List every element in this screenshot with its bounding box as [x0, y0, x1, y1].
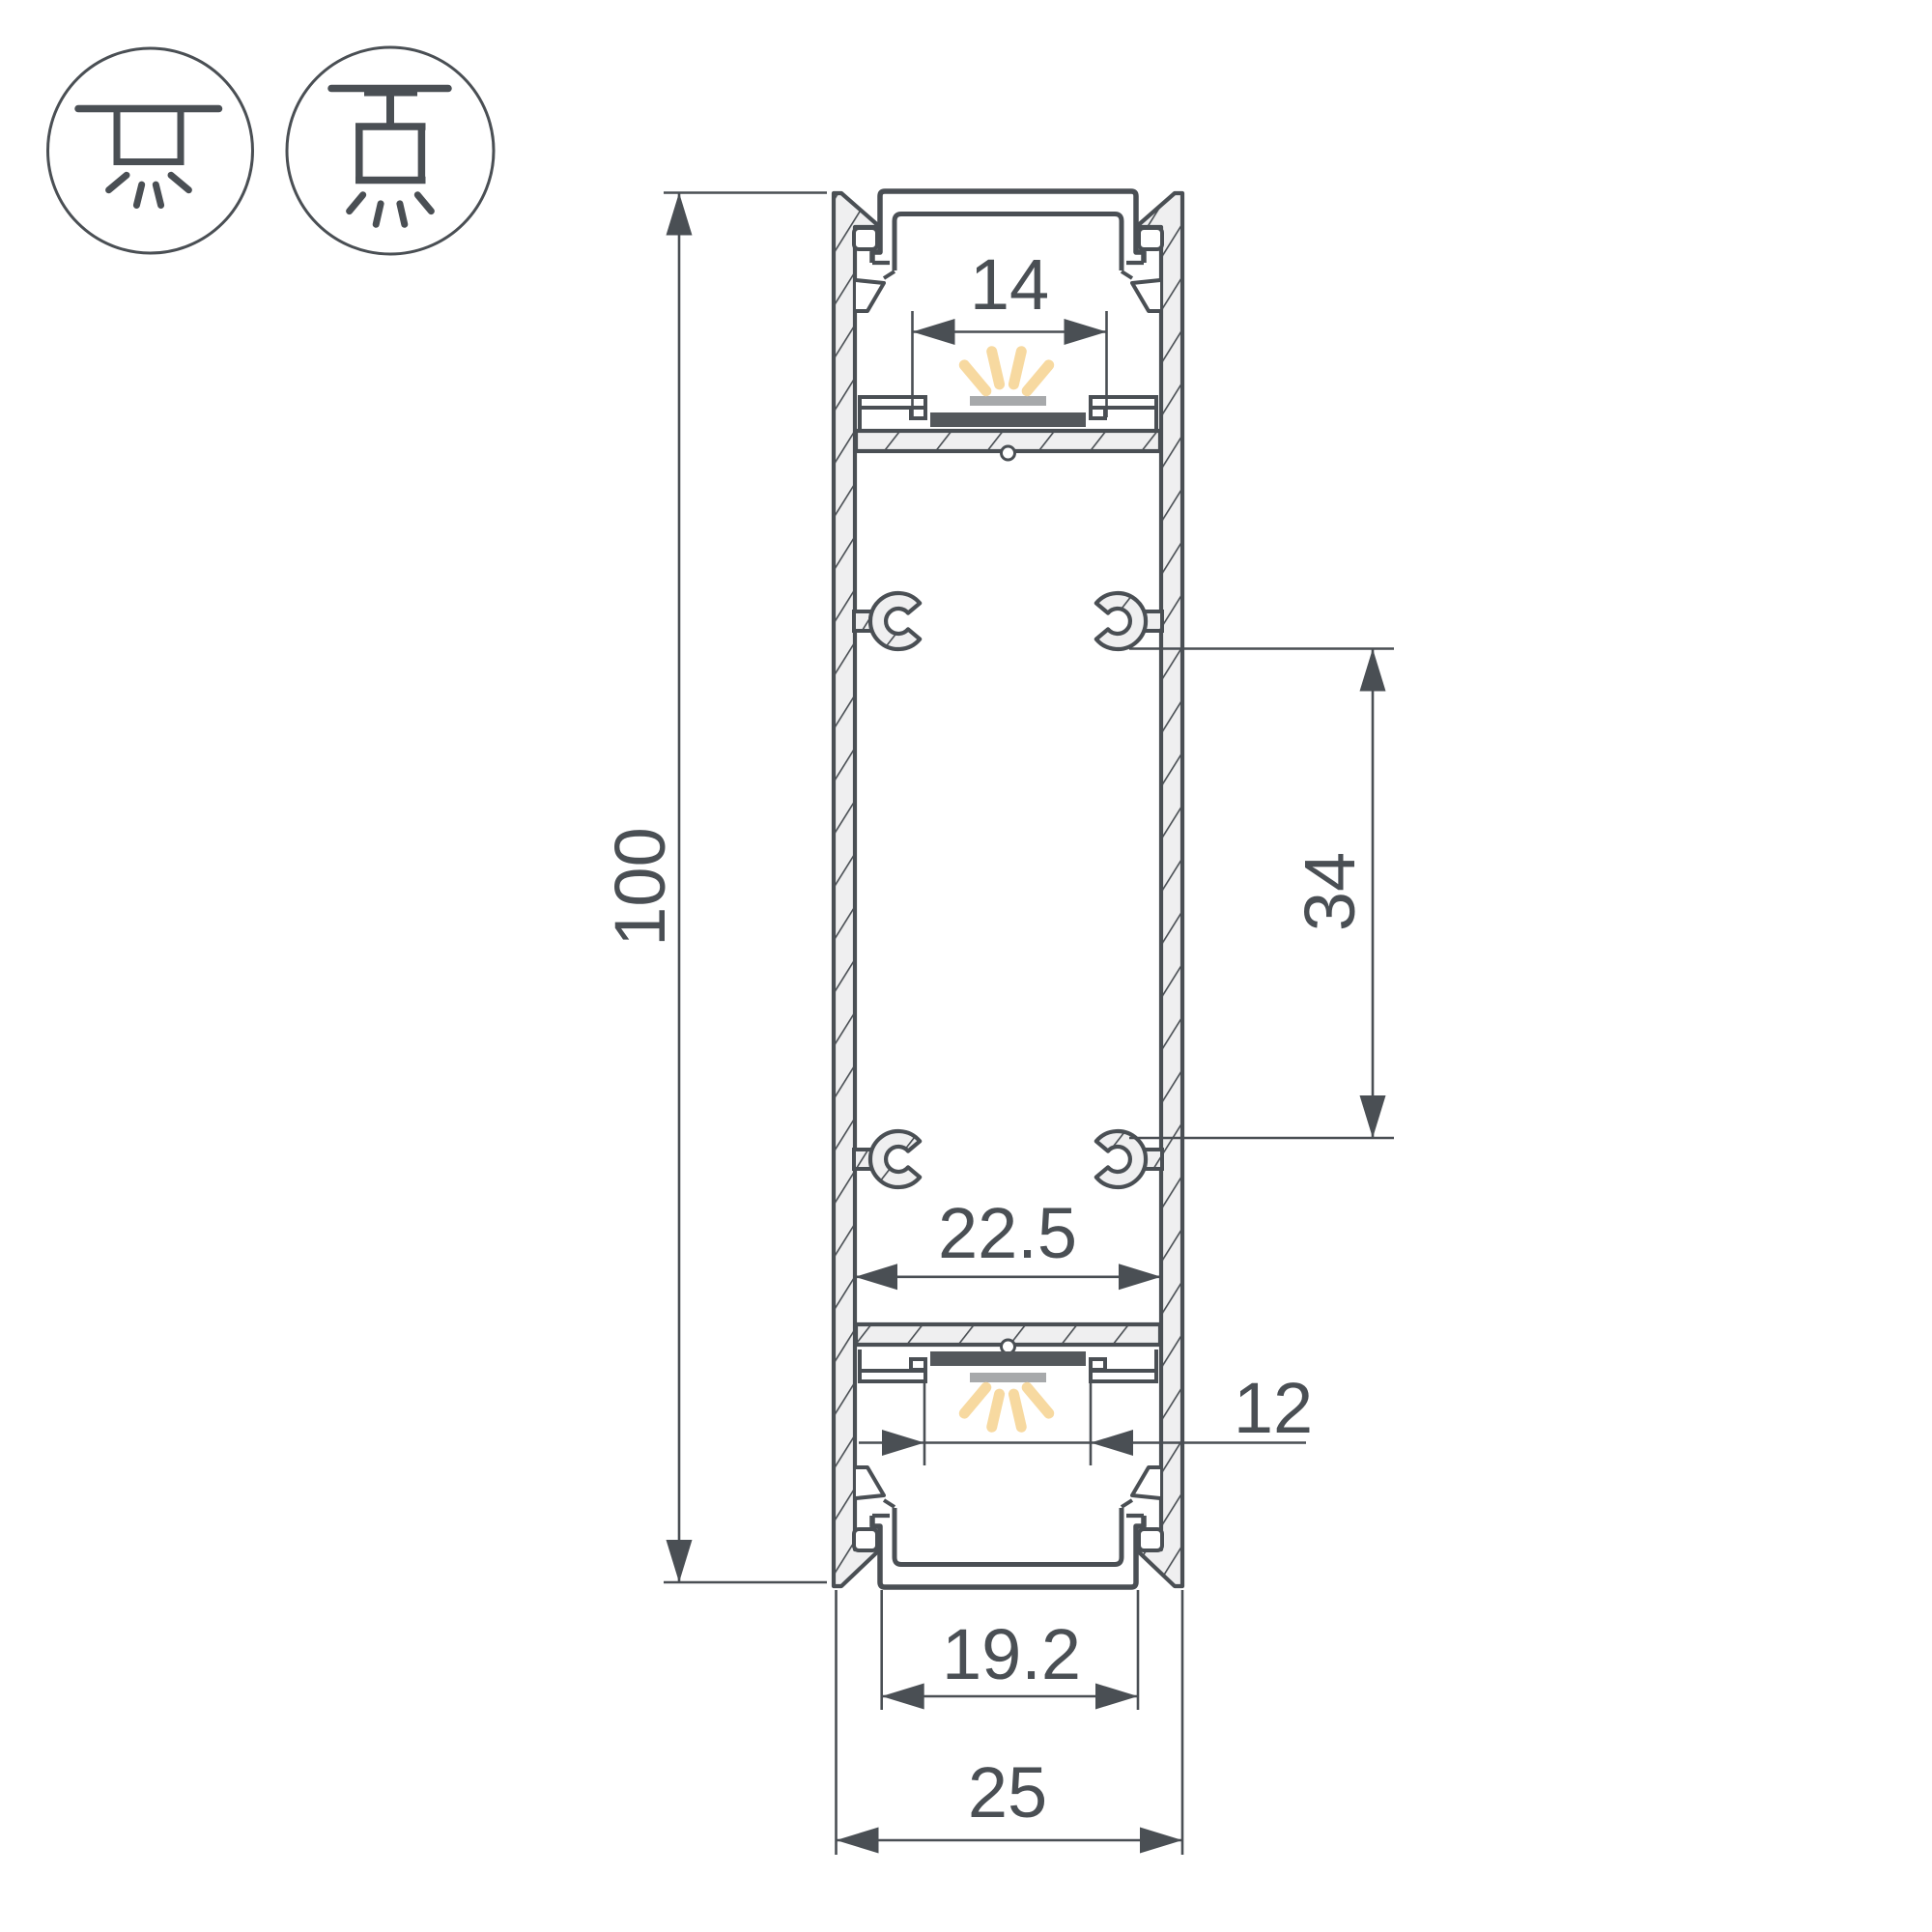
svg-text:100: 100 [600, 827, 680, 946]
svg-text:25: 25 [968, 1752, 1047, 1833]
svg-text:34: 34 [1290, 852, 1370, 931]
svg-text:14: 14 [970, 244, 1049, 325]
svg-text:22.5: 22.5 [938, 1193, 1077, 1273]
svg-text:19.2: 19.2 [942, 1614, 1081, 1694]
svg-text:12: 12 [1234, 1368, 1313, 1448]
